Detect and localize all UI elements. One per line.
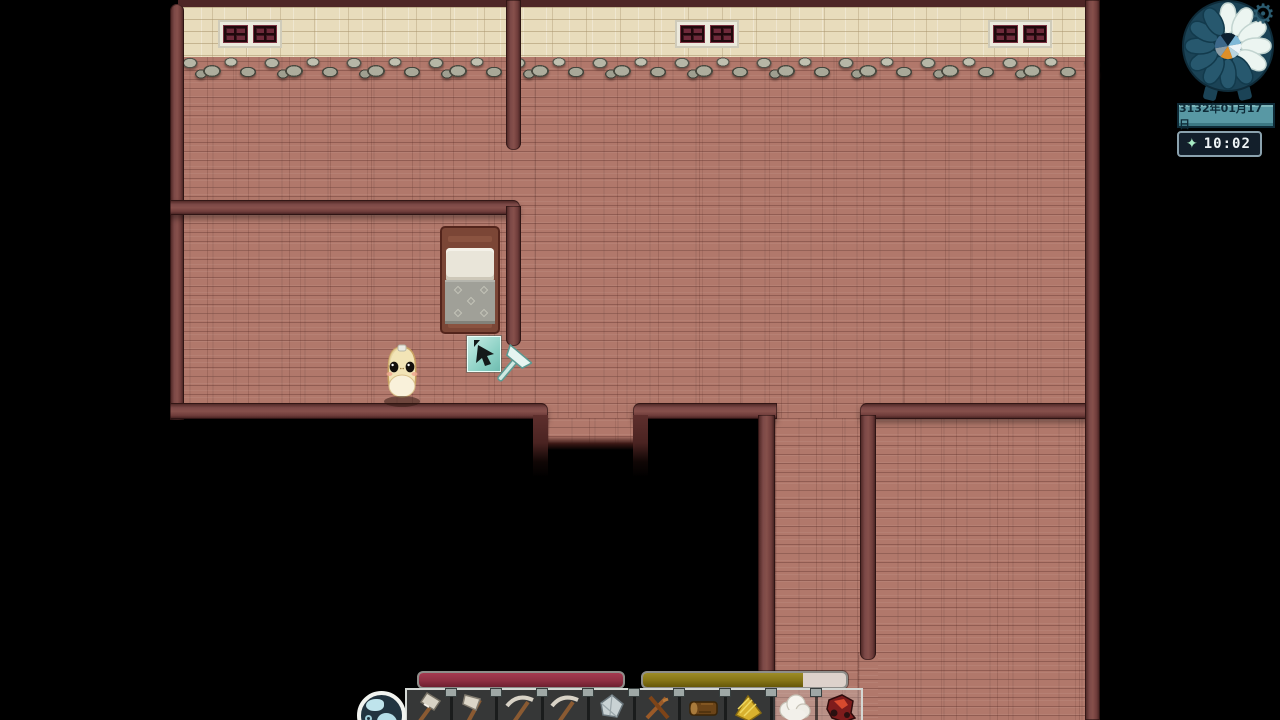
health-bar	[417, 671, 625, 689]
axe-tool-icon	[488, 344, 532, 390]
hotbar-slot[interactable]	[453, 690, 499, 720]
wall-corridor-left	[758, 415, 775, 679]
flint-icon	[593, 691, 629, 720]
game-screen: ⚙ 3132年01月17日 ✦ 10:02	[0, 0, 1280, 720]
hotbar-slot[interactable]	[498, 690, 544, 720]
wall-right-boundary	[1085, 0, 1100, 720]
hammer-icon	[410, 691, 446, 720]
log-icon	[685, 691, 721, 720]
wall-stub-left	[533, 415, 548, 477]
wall-room-right	[506, 206, 521, 346]
bed-blanket	[445, 280, 495, 324]
wall-bottom-middle	[633, 403, 777, 419]
wall-bottom-left	[170, 403, 548, 419]
meat-icon	[822, 691, 858, 720]
upper-wall	[178, 7, 1100, 57]
window	[675, 20, 739, 48]
stone-foundation-row	[178, 54, 1100, 82]
bed[interactable]	[440, 226, 500, 334]
hotbar-slot[interactable]	[818, 690, 861, 720]
wall-pillar	[506, 0, 521, 150]
floor-main-room	[166, 52, 1100, 420]
stamina-bar-fill	[643, 673, 803, 687]
date-panel: 3132年01月17日	[1177, 103, 1275, 128]
window	[988, 20, 1052, 48]
hotbar	[405, 688, 863, 720]
orb-highlight	[377, 713, 397, 720]
pickaxe-icon	[547, 691, 583, 720]
wall-stub-middle	[633, 415, 648, 477]
orb-detail	[365, 715, 372, 720]
wool-icon	[776, 691, 812, 720]
axe-icon	[456, 691, 492, 720]
wheat-icon	[730, 691, 766, 720]
wall-corridor-right	[860, 415, 876, 660]
alcove-shadow	[548, 436, 635, 450]
health-bar-fill	[419, 673, 623, 687]
stamina-bar	[641, 671, 848, 689]
hotbar-slot[interactable]	[590, 690, 636, 720]
creature-shadow	[384, 396, 420, 407]
sparkle-icon: ✦	[1186, 137, 1198, 151]
wall-bottom-right	[860, 403, 1100, 419]
orb-highlight	[366, 699, 384, 711]
hotbar-slot[interactable]	[681, 690, 727, 720]
creature[interactable]	[382, 344, 422, 408]
bed-pillow	[446, 248, 494, 282]
unexplored-top-left	[0, 0, 180, 58]
time-panel: ✦ 10:02	[1177, 131, 1262, 157]
bed-headboard	[448, 236, 492, 242]
wall-room-top	[170, 200, 520, 215]
hotbar-slot[interactable]	[407, 690, 453, 720]
floor-right-room	[874, 418, 1085, 720]
gear-icon[interactable]: ⚙	[1251, 1, 1275, 28]
time-text: 10:02	[1204, 136, 1251, 152]
sticks-icon	[639, 691, 675, 720]
pickaxe-icon	[502, 691, 538, 720]
hotbar-slot[interactable]	[727, 690, 773, 720]
creature-sprite	[382, 344, 422, 402]
window	[218, 20, 282, 48]
hotbar-slot[interactable]	[544, 690, 590, 720]
hotbar-slot[interactable]	[773, 690, 819, 720]
date-text: 3132年01月17日	[1179, 100, 1273, 132]
hotbar-slot[interactable]	[636, 690, 682, 720]
unexplored-left	[0, 0, 170, 720]
